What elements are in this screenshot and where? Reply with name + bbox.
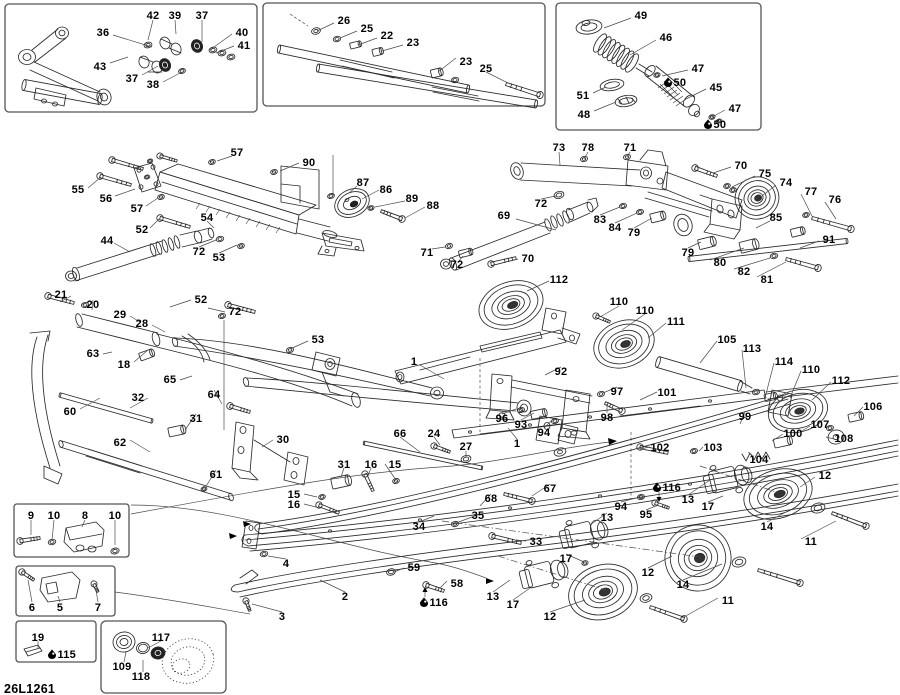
svg-text:91: 91 xyxy=(823,234,836,246)
svg-text:16: 16 xyxy=(288,499,301,511)
svg-text:44: 44 xyxy=(101,235,114,247)
svg-text:27: 27 xyxy=(460,441,473,453)
svg-text:49: 49 xyxy=(635,10,648,22)
svg-text:100: 100 xyxy=(783,428,802,440)
svg-text:28: 28 xyxy=(136,318,149,330)
svg-text:23: 23 xyxy=(460,56,473,68)
svg-text:107: 107 xyxy=(810,419,829,431)
svg-text:30: 30 xyxy=(277,434,290,446)
svg-text:88: 88 xyxy=(427,200,440,212)
svg-text:62: 62 xyxy=(114,437,127,449)
svg-text:15: 15 xyxy=(389,459,402,471)
svg-text:117: 117 xyxy=(152,632,171,644)
svg-text:17: 17 xyxy=(560,553,573,565)
svg-text:96: 96 xyxy=(496,413,509,425)
svg-text:109: 109 xyxy=(112,661,131,673)
svg-text:60: 60 xyxy=(64,406,77,418)
svg-text:102: 102 xyxy=(650,442,669,454)
svg-text:81: 81 xyxy=(761,274,774,286)
svg-text:40: 40 xyxy=(236,27,249,39)
svg-text:50: 50 xyxy=(674,77,687,89)
svg-text:98: 98 xyxy=(601,412,614,424)
svg-text:11: 11 xyxy=(722,595,734,607)
svg-text:22: 22 xyxy=(381,30,394,42)
svg-text:106: 106 xyxy=(863,401,882,413)
svg-text:65: 65 xyxy=(164,374,177,386)
svg-text:113: 113 xyxy=(743,343,762,355)
svg-text:68: 68 xyxy=(485,493,498,505)
svg-text:13: 13 xyxy=(682,494,695,506)
svg-text:97: 97 xyxy=(611,386,624,398)
svg-text:29: 29 xyxy=(114,309,127,321)
svg-text:82: 82 xyxy=(738,266,751,278)
svg-text:13: 13 xyxy=(487,591,500,603)
svg-text:42: 42 xyxy=(147,10,160,22)
svg-text:45: 45 xyxy=(710,82,723,94)
svg-text:89: 89 xyxy=(406,193,419,205)
svg-text:83: 83 xyxy=(594,214,607,226)
svg-text:19: 19 xyxy=(32,632,45,644)
svg-text:56: 56 xyxy=(100,193,113,205)
svg-text:72: 72 xyxy=(451,259,464,271)
svg-text:47: 47 xyxy=(729,103,742,115)
svg-text:13: 13 xyxy=(601,512,614,524)
svg-text:31: 31 xyxy=(338,459,351,471)
svg-text:51: 51 xyxy=(577,90,590,102)
svg-text:47: 47 xyxy=(692,63,705,75)
svg-text:53: 53 xyxy=(312,334,325,346)
svg-text:5: 5 xyxy=(57,602,63,614)
svg-text:12: 12 xyxy=(642,567,655,579)
svg-text:11: 11 xyxy=(805,536,817,548)
svg-text:31: 31 xyxy=(190,413,203,425)
svg-text:17: 17 xyxy=(702,501,715,513)
svg-text:39: 39 xyxy=(169,10,182,22)
svg-text:52: 52 xyxy=(195,294,208,306)
svg-text:9: 9 xyxy=(28,510,34,522)
svg-text:2: 2 xyxy=(342,591,348,603)
svg-text:6: 6 xyxy=(29,602,35,614)
svg-text:34: 34 xyxy=(413,521,426,533)
svg-text:72: 72 xyxy=(229,306,242,318)
svg-text:72: 72 xyxy=(535,198,548,210)
svg-text:32: 32 xyxy=(132,392,145,404)
svg-text:111: 111 xyxy=(667,316,685,328)
svg-text:92: 92 xyxy=(555,366,568,378)
svg-text:57: 57 xyxy=(131,203,144,215)
svg-text:71: 71 xyxy=(624,142,637,154)
svg-text:86: 86 xyxy=(380,184,393,196)
svg-text:114: 114 xyxy=(775,356,794,368)
svg-text:52: 52 xyxy=(136,224,149,236)
svg-text:101: 101 xyxy=(657,387,676,399)
svg-text:48: 48 xyxy=(578,109,591,121)
svg-text:116: 116 xyxy=(663,482,682,494)
svg-text:55: 55 xyxy=(72,184,85,196)
svg-text:63: 63 xyxy=(87,348,100,360)
svg-text:10: 10 xyxy=(48,510,61,522)
svg-text:25: 25 xyxy=(361,23,374,35)
svg-text:57: 57 xyxy=(231,147,244,159)
svg-text:38: 38 xyxy=(147,79,160,91)
svg-text:79: 79 xyxy=(682,247,695,259)
svg-text:103: 103 xyxy=(703,442,722,454)
svg-text:16: 16 xyxy=(365,459,378,471)
svg-text:41: 41 xyxy=(238,40,251,52)
svg-text:87: 87 xyxy=(357,177,370,189)
svg-text:116: 116 xyxy=(430,597,449,609)
svg-text:18: 18 xyxy=(118,359,131,371)
svg-text:72: 72 xyxy=(193,246,206,258)
svg-text:33: 33 xyxy=(530,536,543,548)
svg-text:80: 80 xyxy=(714,257,727,269)
svg-text:79: 79 xyxy=(628,227,641,239)
svg-text:112: 112 xyxy=(832,375,851,387)
svg-text:58: 58 xyxy=(451,578,464,590)
svg-text:24: 24 xyxy=(428,428,441,440)
svg-text:1: 1 xyxy=(514,438,520,450)
svg-text:7: 7 xyxy=(95,602,101,614)
svg-text:3: 3 xyxy=(279,611,285,623)
svg-text:54: 54 xyxy=(201,212,214,224)
svg-text:46: 46 xyxy=(660,32,673,44)
svg-text:21: 21 xyxy=(55,289,68,301)
svg-text:59: 59 xyxy=(408,562,421,574)
svg-text:25: 25 xyxy=(480,63,493,75)
svg-text:43: 43 xyxy=(94,61,107,73)
svg-text:26L1261: 26L1261 xyxy=(4,682,55,695)
svg-text:37: 37 xyxy=(126,73,139,85)
svg-text:64: 64 xyxy=(208,389,221,401)
svg-text:93: 93 xyxy=(515,419,528,431)
svg-text:70: 70 xyxy=(735,160,748,172)
svg-text:94: 94 xyxy=(615,501,628,513)
svg-text:53: 53 xyxy=(213,252,226,264)
svg-text:78: 78 xyxy=(582,142,595,154)
svg-text:110: 110 xyxy=(802,364,821,376)
svg-text:110: 110 xyxy=(636,305,655,317)
svg-text:104: 104 xyxy=(749,454,769,466)
svg-text:108: 108 xyxy=(834,433,853,445)
svg-text:67: 67 xyxy=(544,483,557,495)
svg-text:95: 95 xyxy=(640,509,653,521)
svg-text:110: 110 xyxy=(610,296,629,308)
svg-text:14: 14 xyxy=(761,521,774,533)
svg-text:77: 77 xyxy=(805,186,818,198)
svg-text:61: 61 xyxy=(210,469,223,481)
svg-text:1: 1 xyxy=(411,356,417,368)
svg-text:85: 85 xyxy=(770,212,783,224)
svg-text:36: 36 xyxy=(97,27,110,39)
svg-text:50: 50 xyxy=(714,119,727,131)
svg-text:4: 4 xyxy=(283,558,290,570)
svg-text:73: 73 xyxy=(553,142,566,154)
svg-text:84: 84 xyxy=(609,222,622,234)
svg-text:12: 12 xyxy=(819,470,832,482)
svg-text:99: 99 xyxy=(739,411,752,423)
svg-text:76: 76 xyxy=(829,194,842,206)
svg-text:66: 66 xyxy=(394,428,407,440)
svg-text:8: 8 xyxy=(82,510,88,522)
svg-text:35: 35 xyxy=(472,510,485,522)
svg-text:14: 14 xyxy=(677,579,690,591)
svg-text:105: 105 xyxy=(717,334,736,346)
svg-text:90: 90 xyxy=(303,157,316,169)
svg-text:71: 71 xyxy=(421,247,434,259)
svg-text:118: 118 xyxy=(132,671,151,683)
svg-text:17: 17 xyxy=(507,599,520,611)
svg-text:12: 12 xyxy=(544,611,557,623)
svg-text:115: 115 xyxy=(58,649,77,661)
svg-text:26: 26 xyxy=(338,15,351,27)
svg-text:37: 37 xyxy=(196,10,209,22)
svg-text:112: 112 xyxy=(550,274,569,286)
svg-text:94: 94 xyxy=(538,427,551,439)
svg-text:23: 23 xyxy=(407,37,420,49)
svg-text:10: 10 xyxy=(109,510,122,522)
svg-text:70: 70 xyxy=(522,253,535,265)
svg-text:74: 74 xyxy=(780,177,793,189)
svg-text:20: 20 xyxy=(87,299,100,311)
svg-text:69: 69 xyxy=(498,210,511,222)
svg-text:75: 75 xyxy=(759,168,772,180)
